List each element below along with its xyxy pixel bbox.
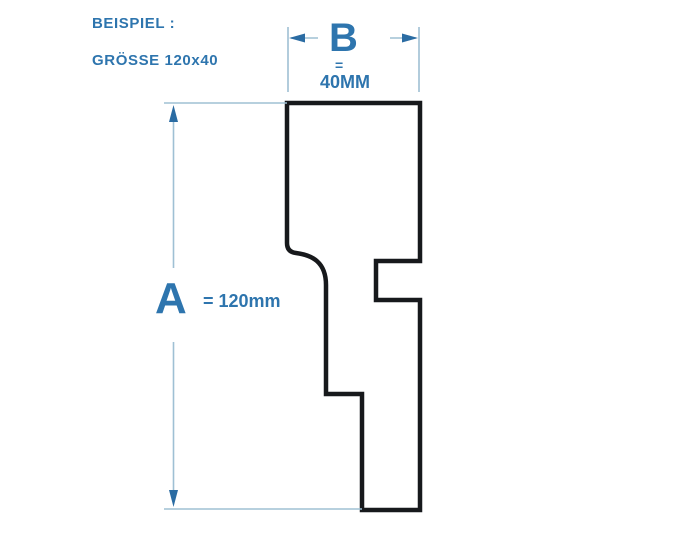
a-arrow-up-icon bbox=[169, 105, 178, 122]
b-arrow-right-icon bbox=[402, 34, 418, 43]
width-dimension-letter: B bbox=[329, 16, 359, 60]
example-heading: BEISPIEL : bbox=[92, 16, 175, 33]
profile-outline bbox=[287, 103, 420, 510]
diagram-page: BEISPIEL : GRÖSSE 120x40 B = 40MM A = 12… bbox=[0, 0, 675, 540]
height-dimension-letter: A bbox=[155, 275, 187, 323]
height-dimension-value: = 120mm bbox=[203, 292, 281, 312]
a-arrow-down-icon bbox=[169, 490, 178, 507]
width-dimension-value: 40MM bbox=[315, 73, 375, 93]
b-arrow-left-icon bbox=[289, 34, 305, 43]
size-heading: GRÖSSE 120x40 bbox=[92, 53, 218, 70]
